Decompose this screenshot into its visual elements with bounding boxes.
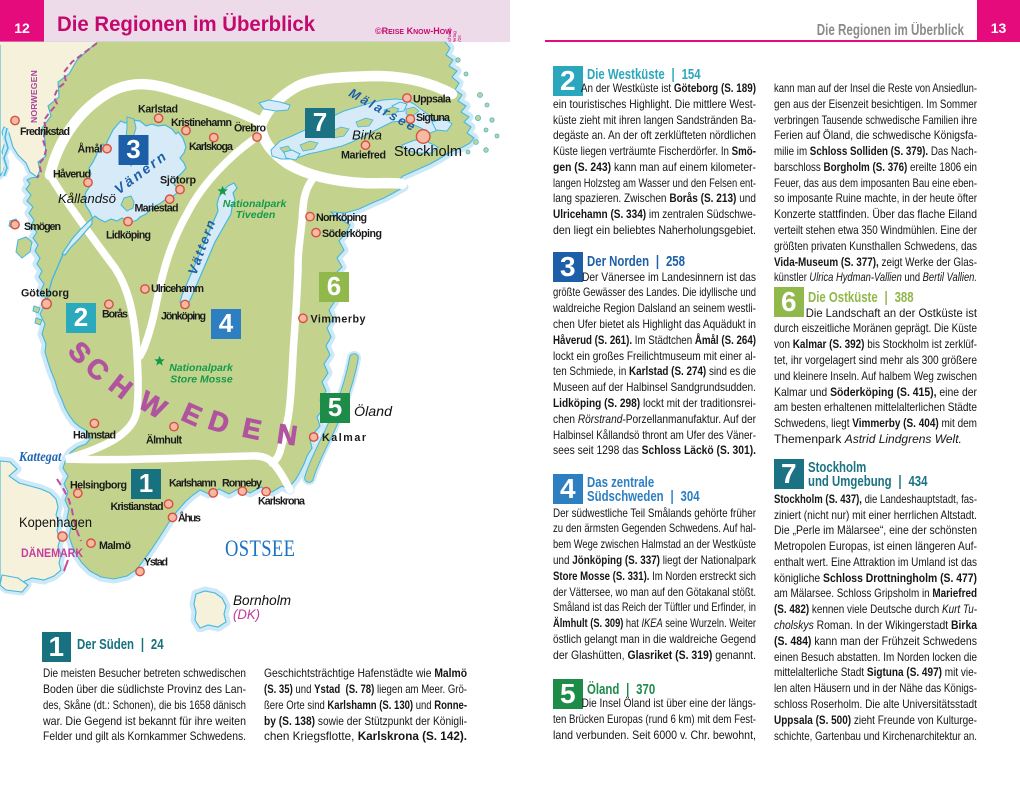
svg-text:Ronneby: Ronneby (222, 478, 262, 490)
svg-text:NORWEGEN: NORWEGEN (29, 70, 39, 123)
svg-text:3: 3 (126, 134, 140, 164)
svg-text:Mariefred: Mariefred (341, 150, 386, 162)
svg-text:Ystad: Ystad (144, 557, 168, 569)
svg-text:Uppsala: Uppsala (413, 94, 452, 106)
svg-text:Kopenhagen: Kopenhagen (19, 514, 92, 530)
svg-text:Göteborg: Göteborg (21, 288, 69, 300)
svg-text:DÄNEMARK: DÄNEMARK (21, 545, 83, 560)
svg-text:Vimmerby: Vimmerby (311, 314, 366, 326)
svg-text:Håverud: Håverud (53, 169, 91, 181)
svg-text:Tiveden: Tiveden (236, 209, 276, 221)
svg-text:Öland: Öland (354, 402, 393, 419)
svg-text:Norrköping: Norrköping (316, 212, 367, 224)
svg-text:Sigtuna: Sigtuna (416, 112, 451, 124)
svg-text:Mariestad: Mariestad (135, 203, 179, 215)
svg-text:6: 6 (327, 271, 341, 301)
svg-text:Malmö: Malmö (99, 540, 131, 552)
svg-text:Store Mosse: Store Mosse (170, 374, 233, 386)
svg-text:Borås: Borås (102, 309, 128, 321)
svg-text:Helsingborg: Helsingborg (70, 480, 127, 492)
svg-text:(DK): (DK) (233, 607, 260, 622)
svg-text:Lidköping: Lidköping (106, 230, 151, 242)
svg-text:Sjötorp: Sjötorp (160, 175, 196, 187)
svg-text:Älmhult: Älmhult (146, 434, 182, 447)
svg-text:Bornholm: Bornholm (233, 593, 291, 608)
svg-text:5: 5 (328, 392, 342, 422)
svg-text:7: 7 (313, 107, 327, 137)
svg-text:Kalmar: Kalmar (322, 432, 366, 444)
svg-text:Karlstad: Karlstad (138, 104, 178, 116)
svg-text:Smögen: Smögen (24, 221, 61, 233)
svg-text:Åhus: Åhus (178, 512, 201, 525)
svg-text:Ulricehamm: Ulricehamm (151, 283, 204, 295)
svg-text:Kållandsö: Kållandsö (58, 192, 116, 206)
svg-text:1: 1 (139, 468, 153, 498)
svg-text:Fredrikstad: Fredrikstad (20, 126, 70, 138)
svg-text:Örebro: Örebro (234, 122, 266, 135)
svg-text:Nationalpark: Nationalpark (169, 362, 234, 374)
svg-text:2: 2 (74, 302, 88, 332)
svg-text:Karlskrona: Karlskrona (258, 496, 306, 508)
svg-text:Kristinehamn: Kristinehamn (171, 117, 232, 129)
svg-text:OSTSEE: OSTSEE (225, 535, 295, 562)
svg-text:Åmål: Åmål (78, 143, 103, 156)
svg-text:Karlshamn: Karlshamn (169, 478, 217, 490)
svg-text:Kristianstad: Kristianstad (111, 501, 164, 513)
svg-text:4: 4 (219, 308, 234, 338)
svg-text:Kattegat: Kattegat (18, 448, 62, 464)
svg-text:Söderköping: Söderköping (322, 228, 382, 240)
svg-text:Stockholm: Stockholm (394, 144, 462, 160)
svg-text:Halmstad: Halmstad (73, 430, 116, 442)
svg-text:Birka: Birka (352, 128, 382, 143)
svg-text:Jönköping: Jönköping (161, 311, 206, 323)
svg-text:Karlskoga: Karlskoga (189, 141, 234, 153)
